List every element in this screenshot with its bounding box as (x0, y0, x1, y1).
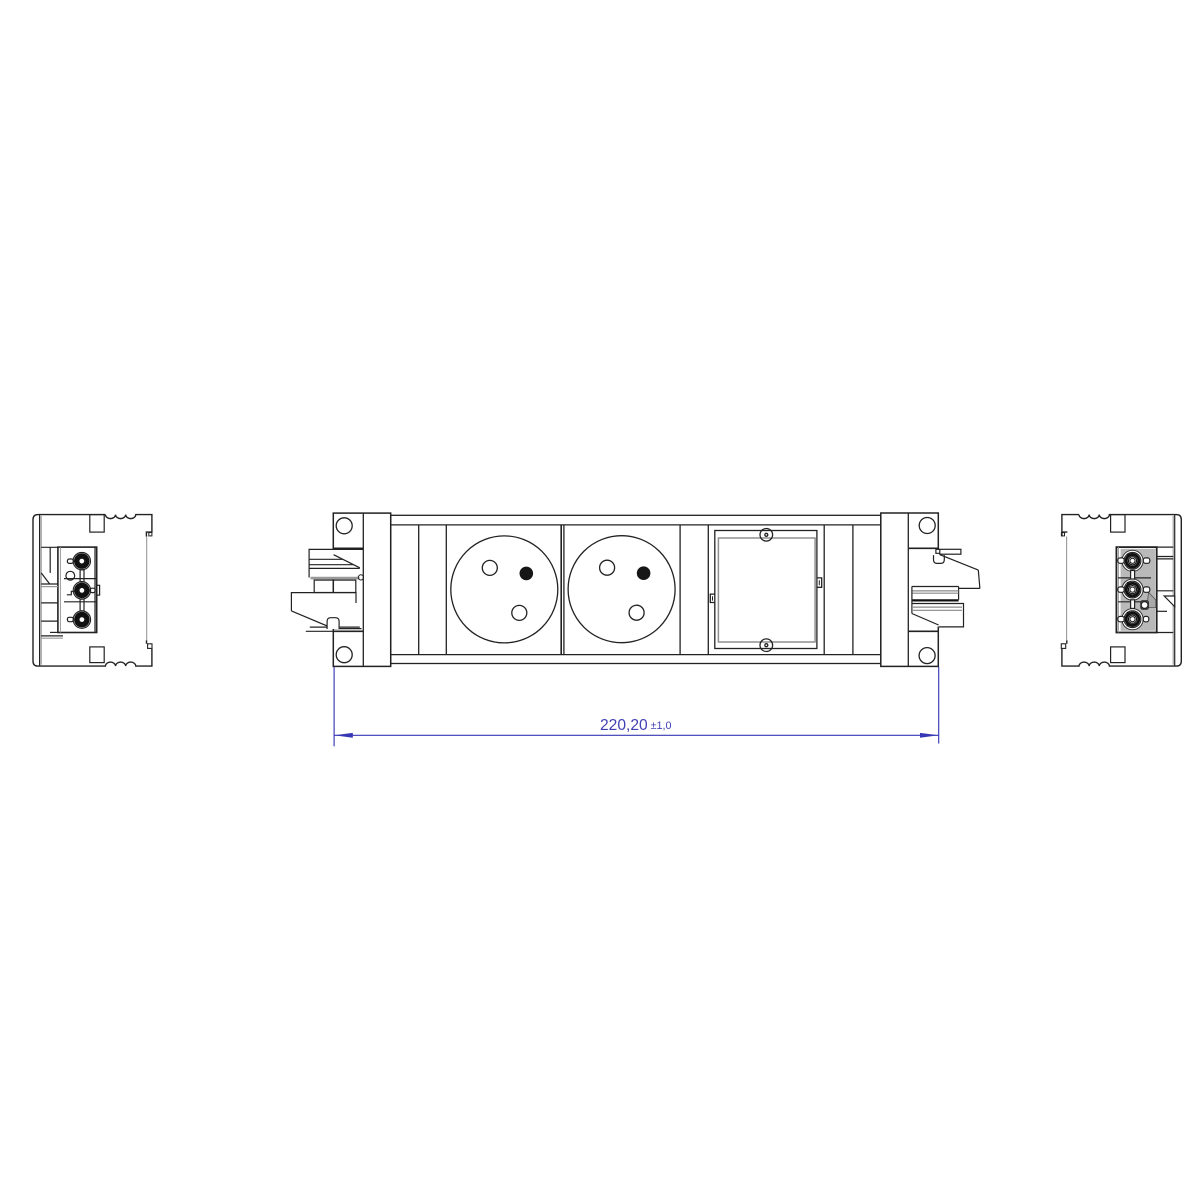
svg-text:±1,0: ±1,0 (651, 720, 672, 732)
svg-text:220,20: 220,20 (600, 717, 648, 734)
